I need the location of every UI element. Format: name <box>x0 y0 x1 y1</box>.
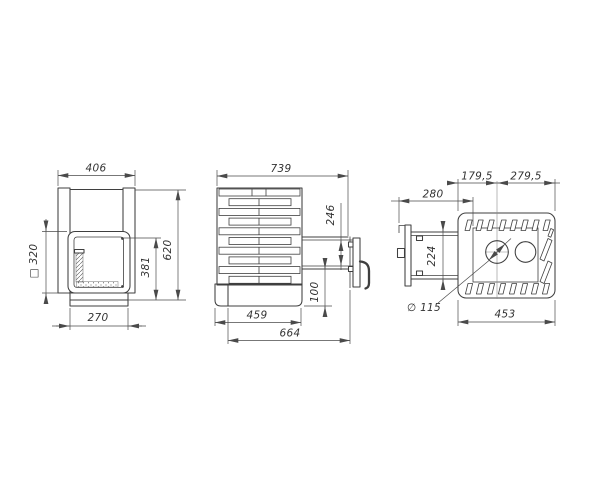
door-handle-side <box>360 262 369 289</box>
dim-top-tunnel-width: 224 <box>426 246 438 267</box>
door-plate-side <box>353 238 360 287</box>
side-geometry <box>215 188 369 306</box>
dim-top-flue-diameter: ∅ 115 <box>407 302 441 314</box>
grate-bar-cap <box>75 250 85 254</box>
front-geometry <box>58 188 135 306</box>
dim-top-body-width: 453 <box>495 309 516 321</box>
hinge-top <box>417 236 423 241</box>
side-view: 739 246 100 459 664 <box>215 163 369 344</box>
fuel-tunnel-side <box>302 237 353 269</box>
technical-drawing-canvas: 406 □ 320 381 620 270 <box>0 0 600 501</box>
dim-top-center-offset-left: 179,5 <box>461 171 493 183</box>
dim-top-tunnel-length: 280 <box>423 189 444 201</box>
coal-bed-stippled <box>77 282 119 288</box>
corner-dot-bottom <box>121 285 124 288</box>
dim-front-base-width: 270 <box>88 312 109 324</box>
dim-front-overall-width: 406 <box>86 163 107 175</box>
door-hinge-top-side <box>349 242 354 247</box>
hinge-bottom <box>417 271 423 276</box>
dim-top-center-offset-right: 279,5 <box>510 171 542 183</box>
dim-side-overall-depth: 739 <box>271 163 292 175</box>
dim-front-overall-height: 620 <box>162 240 174 261</box>
side-dimensions: 739 246 100 459 664 <box>215 163 350 344</box>
dim-front-glass-height: 381 <box>140 257 152 278</box>
top-view: 179,5 279,5 280 224 ∅ 115 453 <box>391 171 560 327</box>
door-hinge-bottom-side <box>349 267 354 272</box>
door-plate-top <box>405 225 411 286</box>
top-geometry <box>398 181 556 303</box>
dim-front-firebox-square: □ 320 <box>28 244 40 279</box>
stone-cage-outline <box>217 188 302 285</box>
corner-dot-top <box>121 237 124 240</box>
front-view: 406 □ 320 381 620 270 <box>28 163 186 331</box>
door-handle-top <box>398 249 405 258</box>
dim-side-door-opening-height: 246 <box>325 205 337 226</box>
dim-side-door-bottom-height: 100 <box>309 282 321 303</box>
stone-cage-slats <box>219 189 300 283</box>
stove-drawing: 406 □ 320 381 620 270 <box>0 0 600 501</box>
grate-bar-hatched <box>76 253 83 282</box>
dim-side-depth-with-door: 664 <box>280 328 301 340</box>
dim-side-body-depth: 459 <box>247 310 268 322</box>
